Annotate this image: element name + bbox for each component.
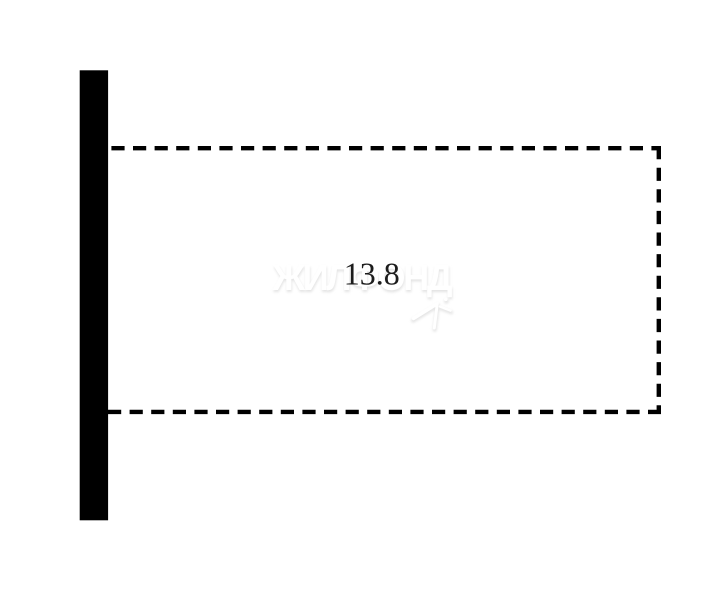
svg-text:13.8: 13.8 (344, 256, 400, 292)
